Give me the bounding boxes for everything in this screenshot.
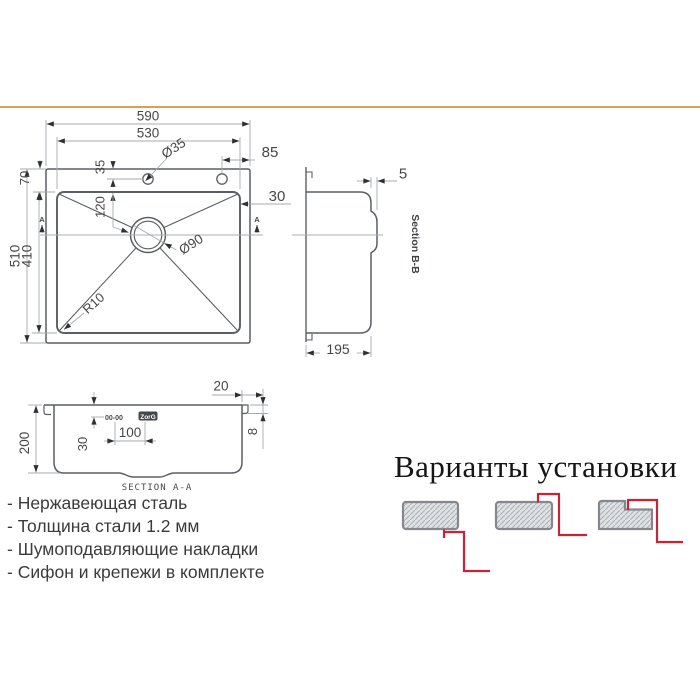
brand-logo-text: ZorG [140, 414, 156, 421]
arrow-20-inner [235, 392, 242, 397]
section-b-view: 5 195 Section B-B [292, 166, 421, 358]
install-options-title: Варианты установки [394, 449, 694, 485]
page: A A [0, 0, 700, 700]
dim-height-bowl: 410 [20, 245, 35, 268]
feature-item: - Толщина стали 1.2 мм [7, 515, 264, 538]
section-a-dimension-lines [28, 389, 268, 473]
rim-clip-bottom [306, 334, 312, 340]
dim-rim-height: 8 [245, 428, 260, 435]
dim-overflow-offset: 30 [75, 437, 90, 451]
install-counter-1 [403, 502, 458, 529]
dim-edge-offset: 20 [213, 379, 228, 394]
faucet-hole-left [143, 174, 153, 184]
dim-drain-offset: 120 [93, 196, 108, 218]
dim-rim-lip: 5 [399, 166, 407, 183]
feature-item: - Сифон и крепежи в комплекте [7, 561, 264, 584]
feature-item: - Шумоподавляющие накладки [7, 538, 264, 561]
bowl-side-profile [306, 192, 377, 333]
dim-depth-a: 200 [17, 432, 32, 455]
section-a-view: 00-00 ZorG [17, 379, 268, 494]
dim-rim-left: 70 [17, 171, 32, 185]
dim-hole-diameter: Ø35 [159, 135, 189, 161]
dim-hole-from-edge: 35 [93, 160, 108, 174]
install-profile-1 [444, 530, 490, 572]
install-counter-3 [599, 501, 652, 529]
install-counter-2 [496, 502, 552, 529]
section-b-label: Section B-B [409, 214, 421, 274]
install-diagrams [403, 494, 683, 571]
rim-hook-right [242, 405, 248, 414]
top-view: A A [8, 109, 292, 344]
dim-rim-right: 30 [269, 188, 286, 205]
install-sink-profiles [444, 494, 683, 571]
section-marker-a-right: A [254, 215, 260, 224]
dim-logo-offset: 100 [119, 425, 142, 440]
dim-width-total: 590 [137, 109, 160, 124]
section-marker-a-left: A [39, 215, 45, 224]
dim-depth-b: 195 [326, 341, 350, 357]
dim-width-bowl: 530 [137, 126, 160, 141]
sink-outer-outline [46, 169, 250, 343]
feature-item: - Нержавеющая сталь [7, 492, 264, 515]
rim-clip-top [306, 172, 312, 178]
dim-hole-offset-right: 85 [262, 144, 279, 161]
faucet-hole-right [217, 174, 227, 184]
feature-list: - Нержавеющая сталь - Толщина стали 1.2 … [7, 492, 264, 584]
dim-corner-radius: R10 [80, 290, 108, 317]
overflow-marks: 00-00 [105, 415, 123, 422]
rim-hook-left [44, 405, 51, 415]
section-b-dimension-lines [306, 177, 397, 357]
arrow-20-outer [256, 392, 263, 397]
